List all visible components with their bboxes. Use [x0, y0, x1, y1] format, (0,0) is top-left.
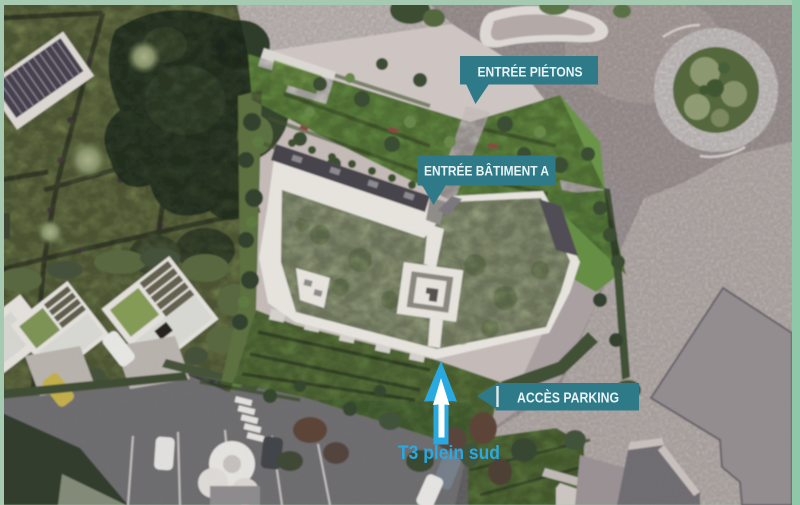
svg-text:T3 plein sud: T3 plein sud — [398, 443, 500, 464]
svg-text:ENTRÉE BÂTIMENT A: ENTRÉE BÂTIMENT A — [424, 162, 549, 179]
svg-text:ENTRÉE PIÉTONS: ENTRÉE PIÉTONS — [478, 64, 583, 80]
svg-text:ACCÈS PARKING: ACCÈS PARKING — [517, 390, 619, 407]
